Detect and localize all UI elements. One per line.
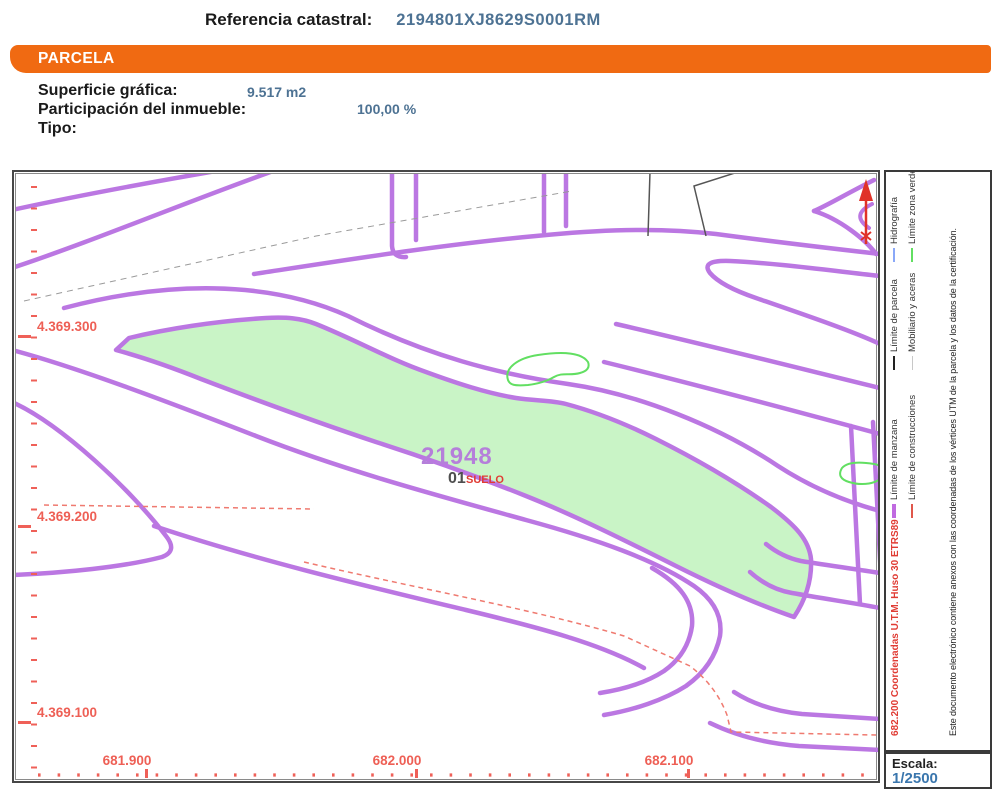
parcela-section-title: PARCELA — [38, 50, 115, 68]
referencia-value: 2194801XJ8629S0001RM — [396, 11, 601, 30]
black-boundary-lines — [648, 174, 738, 236]
legend-entry-construcciones: Límite de construcciones — [907, 395, 918, 518]
legend-swatch-mobiliario — [912, 356, 913, 370]
scale-value: 1/2500 — [892, 771, 984, 787]
parcela-section-header: PARCELA — [10, 45, 991, 73]
legend-entry-parcela: Límite de parcela — [889, 279, 900, 370]
legend-entry-manzana: Límite de manzana — [889, 419, 900, 518]
map-subparcel-number-label: 01 — [448, 470, 466, 487]
y-axis-label-1: 4.369.300 — [37, 319, 97, 334]
parcel-map-svg: 4.369.300 4.369.200 4.369.100 681.900 68… — [16, 174, 878, 781]
legend-sidebar: 682.200 Coordenadas U.T.M. Huso 30 ETRS8… — [884, 170, 992, 752]
x-axis-label-3: 682.100 — [645, 753, 694, 768]
x-axis-label-1: 681.900 — [103, 753, 152, 768]
referencia-line: Referencia catastral: 2194801XJ8629S0001… — [205, 10, 601, 30]
referencia-label: Referencia catastral: — [205, 10, 372, 30]
superficie-value: 9.517 m2 — [247, 84, 306, 100]
map-land-use-label: SUELO — [466, 474, 504, 486]
gray-dashed-boundary — [24, 191, 572, 301]
tipo-label: Tipo: — [38, 120, 77, 138]
legend-swatch-manzana — [892, 504, 896, 518]
legend-swatch-hidrografia — [893, 248, 895, 262]
legend-entry-hidrografia: Hidrografía — [889, 197, 900, 262]
scale-box: Escala: 1/2500 — [884, 752, 992, 789]
legend-entry-zona-verde: Límite zona verde — [907, 170, 918, 262]
superficie-label: Superficie gráfica: — [38, 82, 178, 100]
certification-disclaimer: Este documento electrónico contiene anex… — [948, 228, 958, 736]
axis-ticks — [18, 186, 874, 778]
legend-rotated-strip: 682.200 Coordenadas U.T.M. Huso 30 ETRS8… — [886, 172, 990, 750]
cadastral-map-inner-frame: 4.369.300 4.369.200 4.369.100 681.900 68… — [15, 173, 877, 780]
participacion-value: 100,00 % — [357, 101, 416, 117]
legend-swatch-construcciones — [911, 504, 913, 518]
scale-label: Escala: — [892, 756, 984, 771]
cadastral-map: 4.369.300 4.369.200 4.369.100 681.900 68… — [12, 170, 880, 783]
participacion-label: Participación del inmueble: — [38, 101, 246, 119]
y-axis-label-3: 4.369.100 — [37, 705, 97, 720]
cadastral-certificate-page: Referencia catastral: 2194801XJ8629S0001… — [0, 0, 1000, 800]
legend-entry-mobiliario: Mobiliario y aceras — [907, 273, 918, 370]
legend-swatch-parcela — [893, 356, 895, 370]
x-axis-label-2: 682.000 — [373, 753, 422, 768]
legend-swatch-zona-verde — [911, 248, 913, 262]
utm-coordinates-note: 682.200 Coordenadas U.T.M. Huso 30 ETRS8… — [890, 519, 901, 736]
map-parcel-number-label: 21948 — [421, 443, 493, 470]
y-axis-label-2: 4.369.200 — [37, 509, 97, 524]
